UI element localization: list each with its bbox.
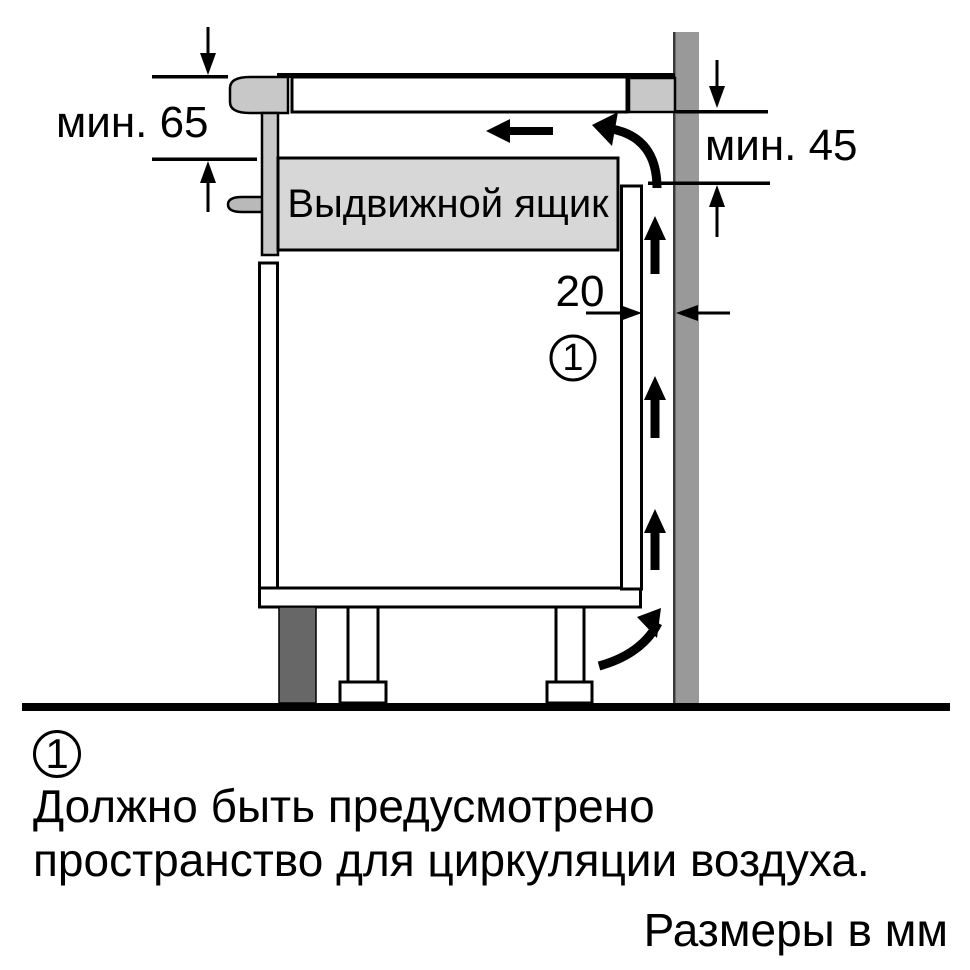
wall-edge-line <box>673 32 676 704</box>
dim-arrow-up-icon <box>709 185 725 237</box>
airflow-up-arrow-icon <box>644 376 666 438</box>
cabinet-back-panel <box>622 186 642 589</box>
airflow-up-arrow-icon <box>644 509 666 570</box>
hob-right-edge <box>629 78 675 112</box>
cabinet-front-panel <box>260 263 278 607</box>
right-leg <box>556 607 584 684</box>
drawer-handle-icon <box>228 197 264 212</box>
worktop <box>292 77 627 112</box>
wall-panel <box>675 32 699 704</box>
airflow-up-arrow-icon <box>644 216 666 274</box>
plinth-panel <box>279 607 316 703</box>
drawer-front-panel <box>262 113 278 255</box>
left-leg-foot <box>340 682 386 703</box>
legend-note-line2: пространство для циркуляции воздуха. <box>33 833 870 887</box>
dim-arrow-down-icon <box>200 27 216 75</box>
left-leg <box>348 607 378 684</box>
units-note: Размеры в мм <box>644 903 948 957</box>
hob-left-edge <box>230 77 288 113</box>
cabinet <box>260 186 642 703</box>
dim-left-label: мин. 65 <box>56 100 209 146</box>
legend-note-line1: Должно быть предусмотрено <box>33 779 655 833</box>
legend-callout-number: 1 <box>33 730 81 778</box>
right-leg-foot <box>547 682 592 703</box>
drawer-label: Выдвижной ящик <box>278 158 618 250</box>
hob-glass-top <box>277 73 675 78</box>
floor-line <box>22 703 950 711</box>
airflow-curve-bottom-arrow-icon <box>599 608 661 666</box>
dim-right-label: мин. 45 <box>705 123 858 169</box>
hob-installation-diagram: мин. 65 мин. 45 20 Выдвижной ящик 1 1 До… <box>0 0 970 970</box>
cabinet-bottom-panel <box>260 588 641 607</box>
airflow-left-arrow-icon <box>486 119 553 143</box>
callout-number: 1 <box>551 336 595 380</box>
dim-arrow-up-icon <box>200 161 216 212</box>
dim-gap-label: 20 <box>551 267 609 317</box>
wall <box>673 32 699 704</box>
dim-arrow-down-icon <box>709 60 725 108</box>
